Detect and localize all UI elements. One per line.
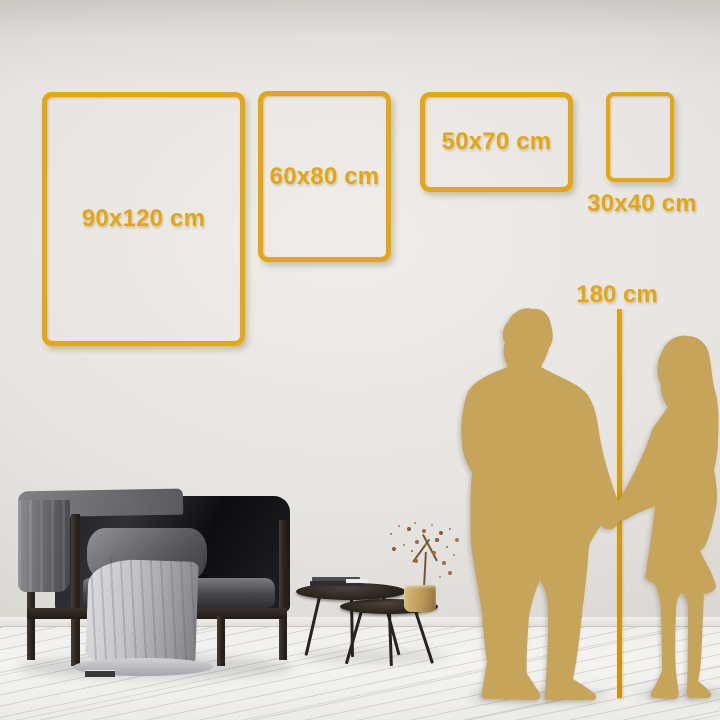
sofa-leg xyxy=(217,616,225,666)
light-throw-blanket xyxy=(85,558,199,668)
tables-shadow xyxy=(298,650,448,663)
dark-throw-blanket xyxy=(18,500,70,592)
man-silhouette xyxy=(461,308,619,700)
frame-30x40 xyxy=(606,92,674,182)
sofa-wood-post xyxy=(71,514,80,666)
frame-60x80: 60x80 cm xyxy=(258,91,391,262)
couple-silhouettes xyxy=(450,300,720,710)
sofa xyxy=(15,490,300,690)
frame-size-label: 60x80 cm xyxy=(270,163,380,191)
frame-90x120: 90x120 cm xyxy=(42,92,245,346)
woman-silhouette xyxy=(611,336,719,699)
book-on-floor xyxy=(85,670,115,677)
frame-size-label: 50x70 cm xyxy=(442,128,552,156)
sofa-wood-post xyxy=(279,520,287,660)
dried-flowers xyxy=(415,540,419,544)
frame-50x70: 50x70 cm xyxy=(420,92,573,192)
frame-size-label: 30x40 cm xyxy=(576,190,708,218)
height-label: 180 cm xyxy=(555,281,679,309)
gold-vase xyxy=(404,585,436,612)
frame-size-label: 90x120 cm xyxy=(82,205,205,233)
size-guide-scene: 90x120 cm 60x80 cm 50x70 cm 30x40 cm 180… xyxy=(0,0,720,720)
